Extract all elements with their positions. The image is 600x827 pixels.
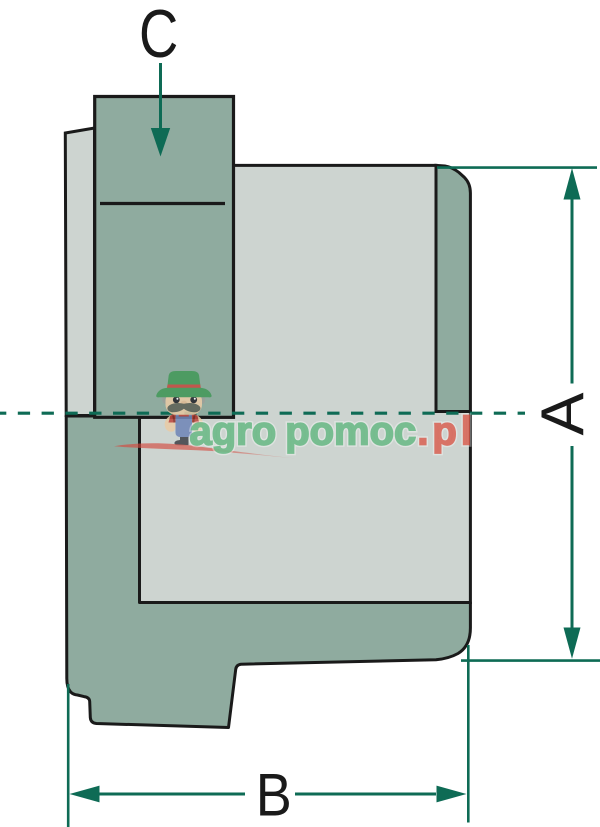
svg-text:A: A <box>529 392 597 435</box>
svg-text:C: C <box>139 0 178 72</box>
svg-text:B: B <box>256 762 292 827</box>
svg-text:agropomoc.pl: agropomoc.pl <box>190 410 476 454</box>
